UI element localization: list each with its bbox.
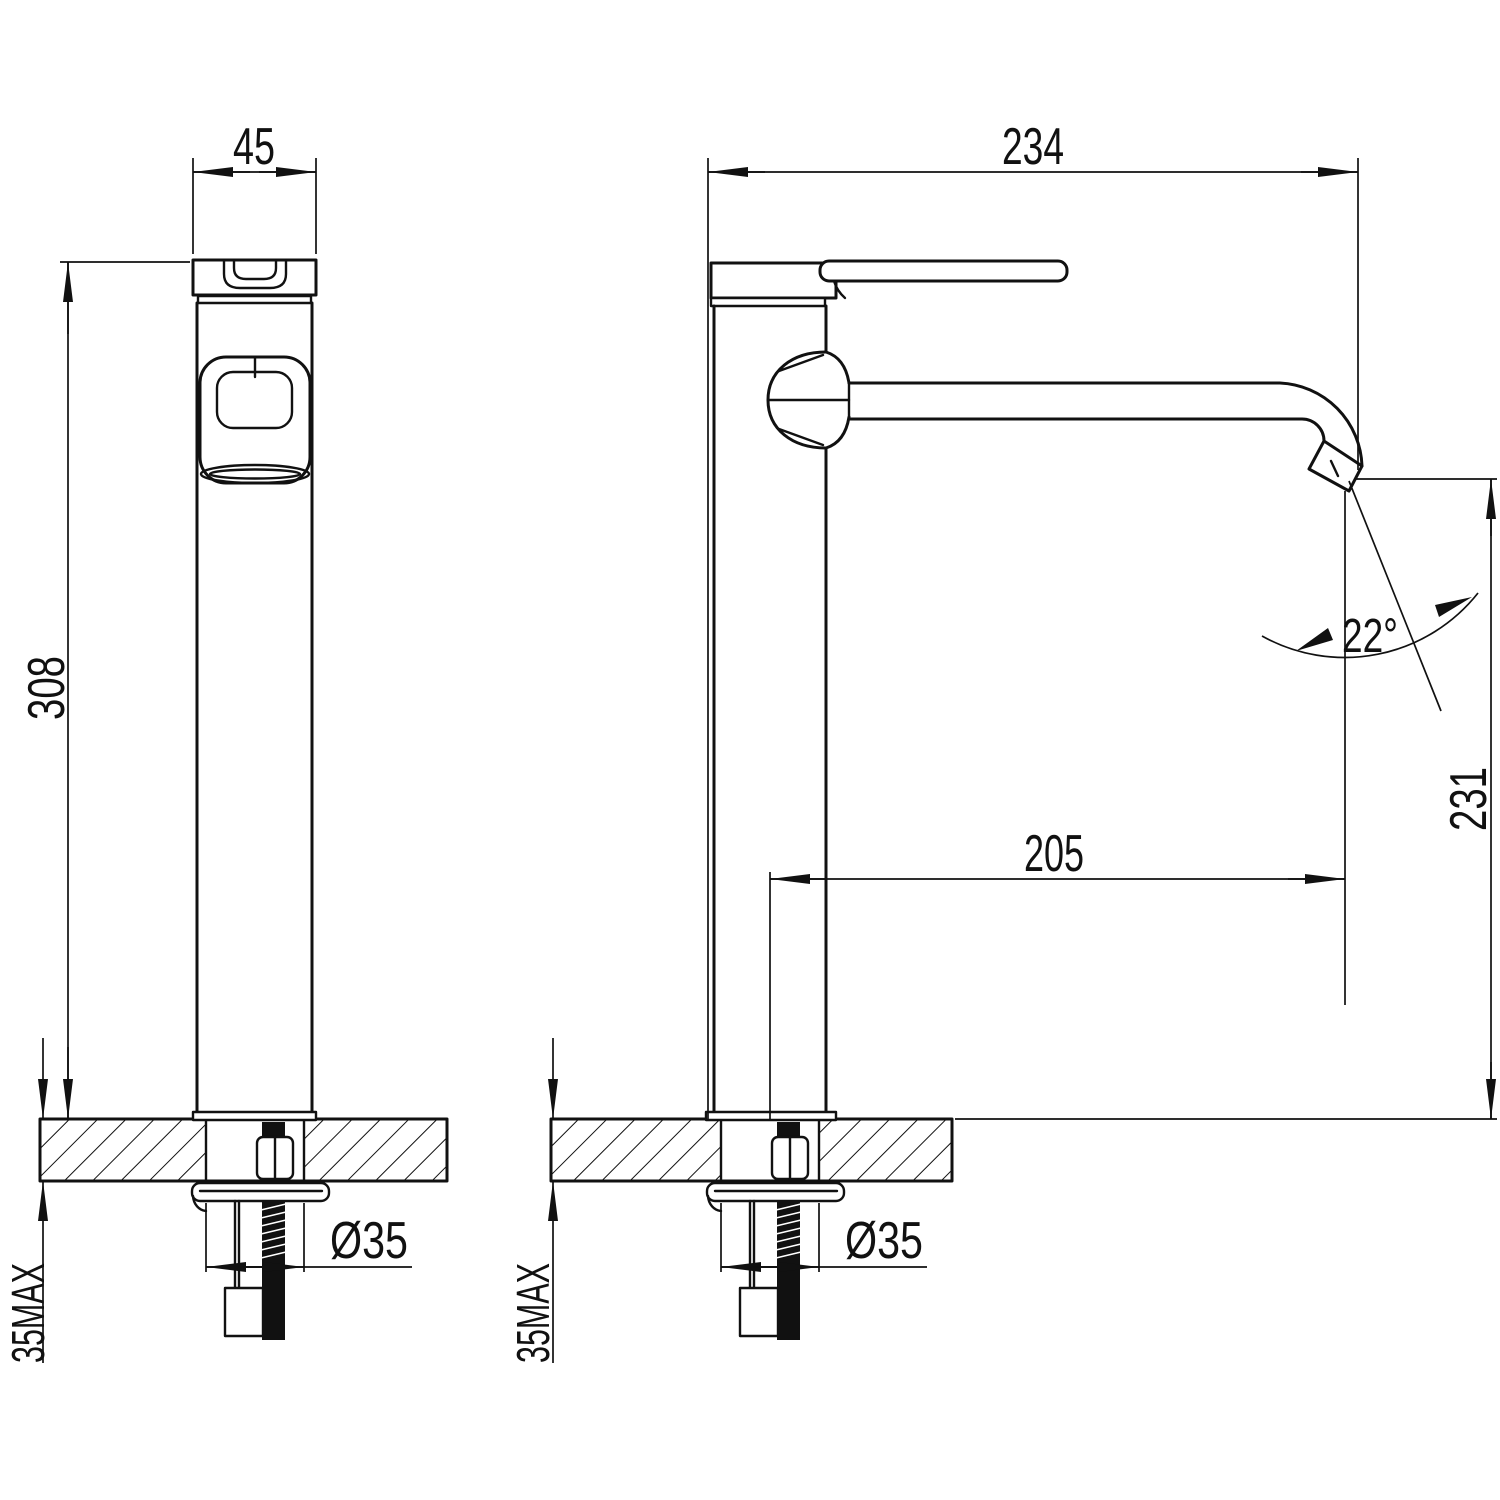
dim-label-hole-dia: Ø35 — [330, 1212, 408, 1270]
faucet-side-profile — [193, 260, 316, 1120]
dim-hole-dia-right: Ø35 — [721, 1203, 927, 1272]
deck-section-right — [551, 1119, 952, 1181]
neck-ring — [711, 298, 825, 306]
dim-label-height: 308 — [18, 656, 76, 720]
drawing-canvas: 45 308 35MAX Ø35 — [0, 0, 1500, 1500]
side-view: 45 308 35MAX Ø35 — [2, 118, 447, 1363]
dim-deck-35max-left: 35MAX — [2, 1038, 54, 1363]
angle-arrow-left — [1296, 628, 1333, 651]
dim-hole-dia-left: Ø35 — [206, 1203, 412, 1272]
neck-ring — [198, 296, 311, 303]
dim-label-deck-max: 35MAX — [507, 1263, 559, 1363]
fixing-block — [225, 1288, 263, 1336]
dim-label-reach: 205 — [1024, 825, 1084, 883]
lever-handle — [820, 261, 1067, 281]
base-plate — [193, 1112, 316, 1120]
front-view: 234 205 231 22° — [507, 118, 1498, 1363]
faucet-front-profile — [706, 261, 1362, 1120]
base-plate — [706, 1112, 836, 1120]
dim-height-231: 231 — [955, 479, 1498, 1119]
spout-arm — [849, 383, 1362, 491]
dim-deck-35max-right: 35MAX — [507, 1038, 559, 1363]
dim-reach-205: 205 — [770, 825, 1345, 1119]
fixing-block — [740, 1288, 778, 1336]
spout-tip-aerator — [1309, 441, 1362, 491]
spout-joint — [768, 352, 849, 448]
technical-drawing: 45 308 35MAX Ø35 — [0, 0, 1500, 1500]
deck-section-left — [40, 1119, 447, 1181]
dim-label-depth: 234 — [1002, 118, 1064, 176]
dim-label-width: 45 — [233, 118, 275, 176]
dim-label-angle: 22° — [1342, 610, 1398, 663]
dim-width-45: 45 — [193, 118, 316, 254]
dim-label-hole-dia: Ø35 — [845, 1212, 923, 1270]
dim-label-outlet-height: 231 — [1440, 767, 1498, 831]
cartridge-cap — [711, 263, 836, 298]
dim-label-deck-max: 35MAX — [2, 1263, 54, 1363]
dim-height-308: 308 — [18, 262, 190, 1119]
dim-angle-22: 22° — [1262, 481, 1478, 1005]
